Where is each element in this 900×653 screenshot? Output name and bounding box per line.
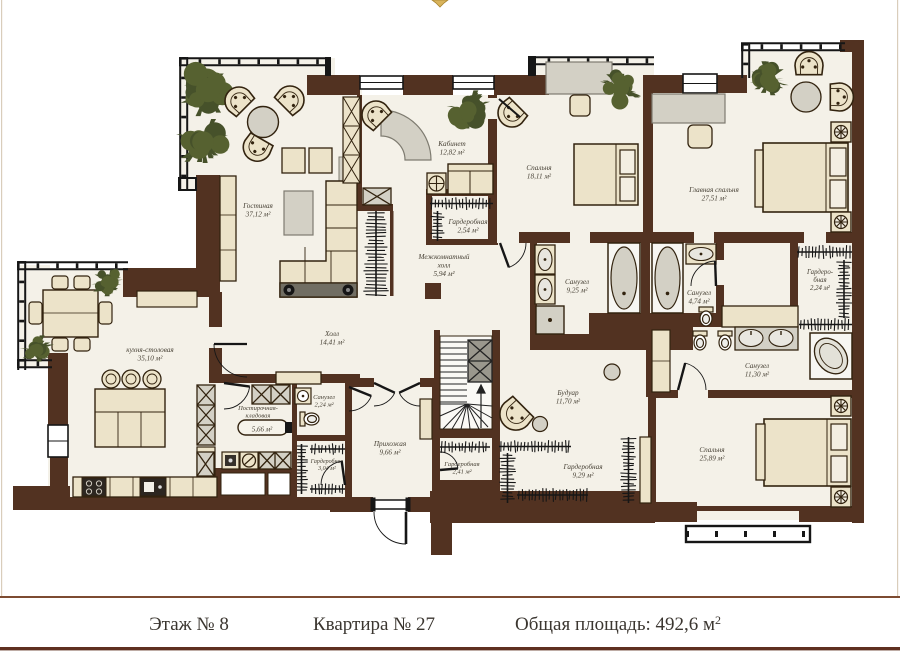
svg-text:Санузел4,74 м²: Санузел4,74 м²: [687, 289, 711, 305]
svg-text:Санузел9,25 м²: Санузел9,25 м²: [565, 278, 589, 294]
svg-text:Общая площадь: 492,6 м2: Общая площадь: 492,6 м2: [515, 613, 721, 635]
svg-text:Спальня25,89 м²: Спальня25,89 м²: [699, 446, 725, 462]
svg-text:Гостиная37,12 м²: Гостиная37,12 м²: [242, 202, 273, 218]
svg-text:Спальня18,11 м²: Спальня18,11 м²: [526, 164, 552, 180]
svg-text:5,66 м²: 5,66 м²: [252, 426, 273, 434]
svg-text:Кабинет12,82 м²: Кабинет12,82 м²: [437, 140, 465, 156]
svg-text:Будуар11,70 м²: Будуар11,70 м²: [556, 389, 581, 405]
svg-text:Санузел2,24 м²: Санузел2,24 м²: [313, 394, 335, 409]
svg-text:Этаж № 8: Этаж № 8: [149, 614, 229, 635]
svg-text:Санузел11,30 м²: Санузел11,30 м²: [745, 362, 770, 378]
svg-text:Квартира № 27: Квартира № 27: [313, 614, 435, 635]
